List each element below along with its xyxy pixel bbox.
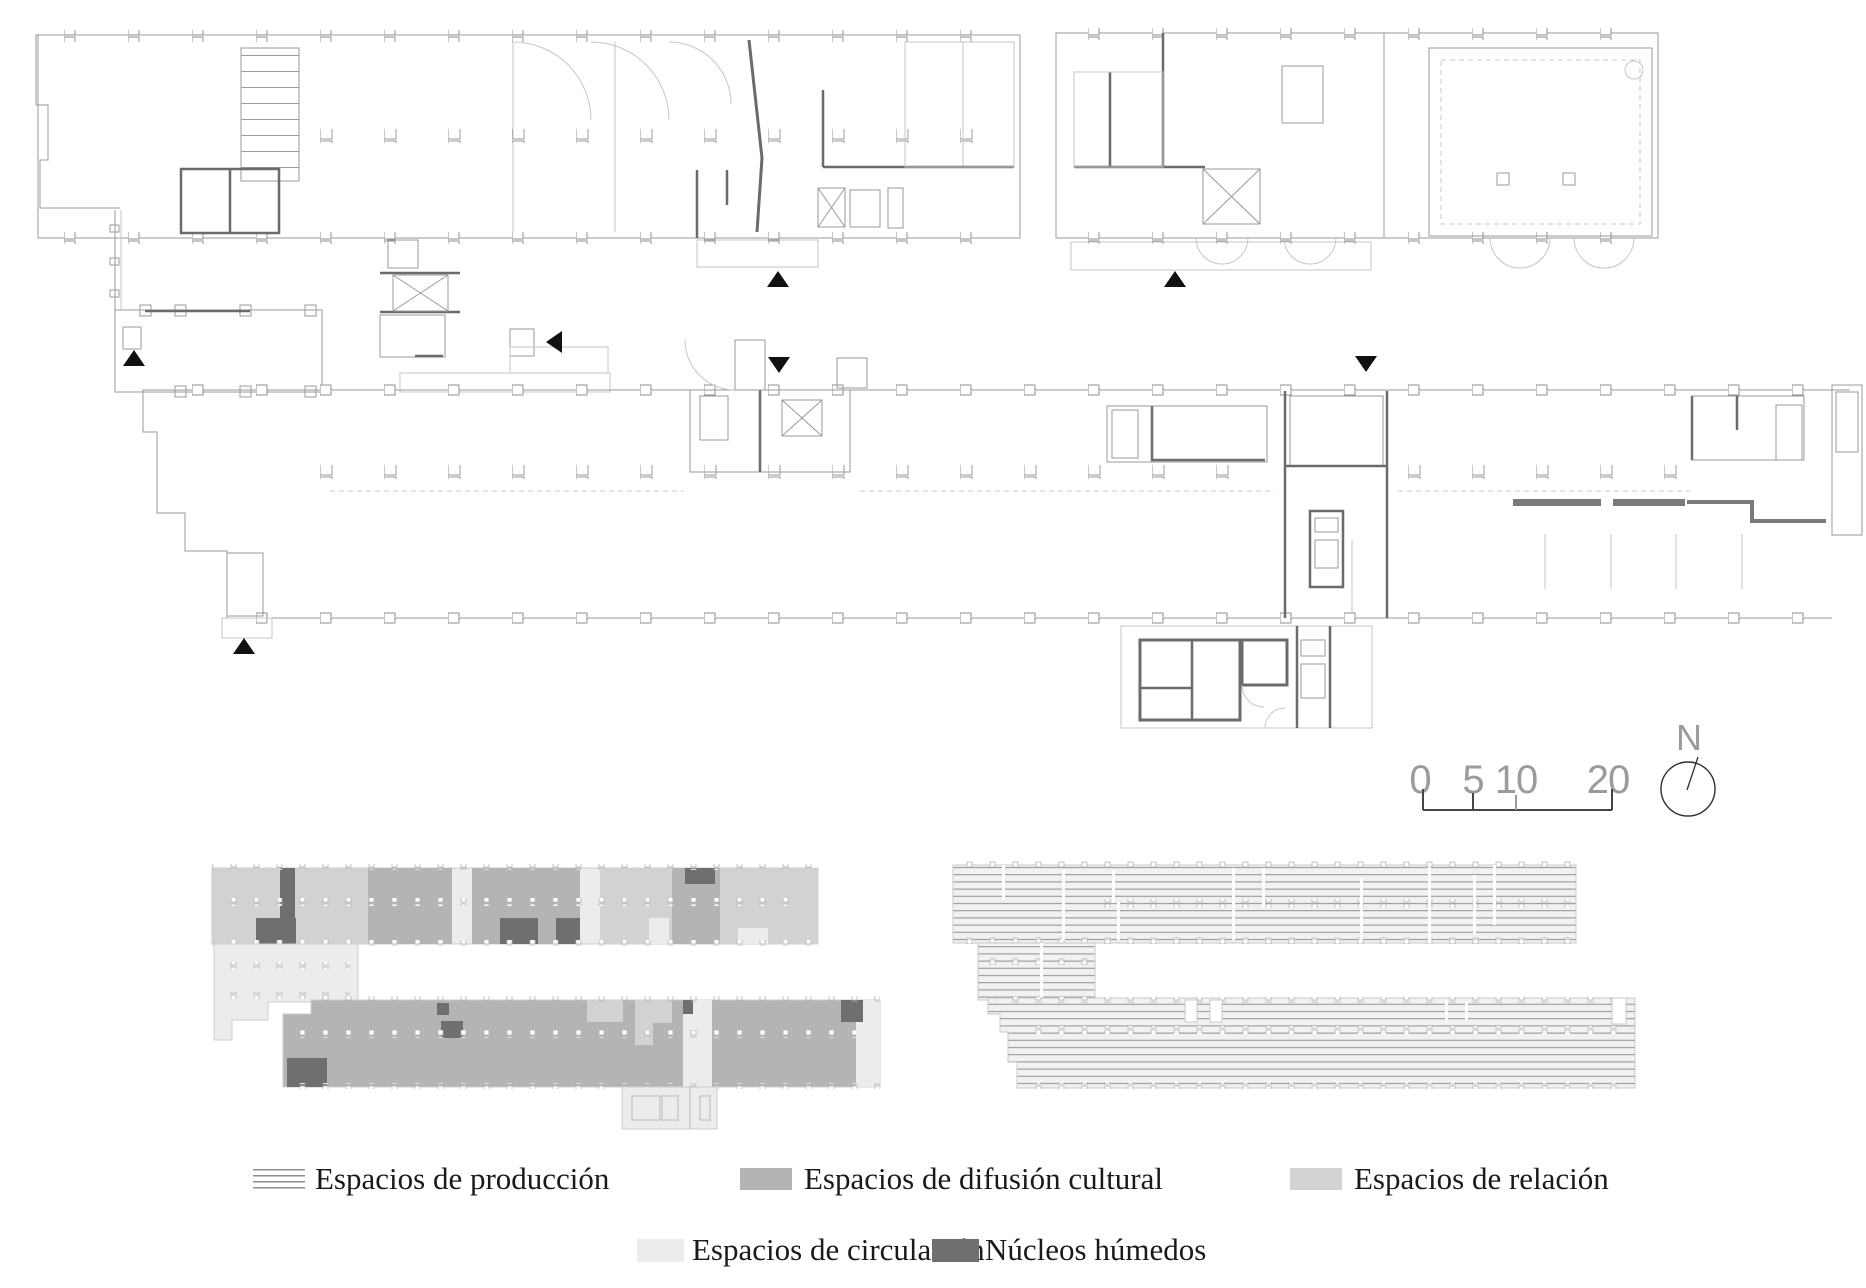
building-lower-bar — [143, 340, 1862, 638]
loading-dock-outline — [1071, 242, 1371, 270]
stair — [123, 327, 141, 349]
core-cluster-1 — [690, 390, 850, 472]
bottom-annex — [1121, 626, 1372, 728]
north-arrow: N — [1661, 717, 1715, 816]
facade-columns-bottom — [227, 612, 1832, 624]
production-diagram — [953, 861, 1635, 1089]
produccion-swatch-icon — [253, 1169, 305, 1189]
stair — [510, 329, 534, 356]
interior-column-row — [290, 129, 1010, 143]
stair — [837, 358, 867, 388]
entrance-marker-up — [233, 638, 255, 654]
circulacion-swatch-icon — [637, 1239, 684, 1262]
stair — [1282, 66, 1323, 123]
core-cluster-2 — [1107, 406, 1267, 462]
building-top-right — [1056, 28, 1658, 270]
interior-column-row — [1400, 465, 1700, 479]
hatched-connector — [978, 943, 1095, 1000]
entrance-marker-left — [546, 331, 562, 353]
large-hall — [1429, 48, 1652, 236]
legend-label: Espacios de producción — [315, 1161, 609, 1197]
wet-core-fill — [685, 868, 715, 884]
wet-core-fill — [683, 1000, 693, 1014]
stair — [388, 240, 418, 268]
building-top-left — [36, 30, 1020, 267]
scale-bar: 0 5 10 20 — [1409, 758, 1629, 810]
facade-columns-top — [185, 384, 1850, 396]
heavy-wall — [1613, 499, 1685, 506]
door-arc — [669, 42, 731, 104]
entrance-marker-down — [1355, 356, 1377, 372]
legend-label: Espacios de relación — [1354, 1161, 1609, 1197]
right-end-rooms — [1692, 396, 1804, 460]
legend-label: Espacios de difusión cultural — [804, 1161, 1163, 1197]
door-arc — [513, 42, 591, 120]
entrance-marker-up — [1164, 271, 1186, 287]
annex-room — [1242, 640, 1287, 685]
legend-item-nucleos: Núcleos húmedos — [932, 1233, 1206, 1267]
main-floor-plan — [36, 28, 1862, 728]
stair — [227, 553, 263, 616]
entrance-marker-down — [768, 357, 790, 373]
facade-columns-top — [38, 30, 1020, 42]
legend-item-difusion: Espacios de difusión cultural — [740, 1162, 1163, 1196]
wet-core-fill — [841, 1000, 863, 1022]
floor-plan-drawing: 0 5 10 20 N — [0, 0, 1866, 1288]
zoning-diagram — [212, 864, 880, 1129]
nucleos-swatch-icon — [932, 1239, 979, 1262]
entrance-marker-up — [767, 271, 789, 287]
door-arc — [591, 42, 669, 120]
relacion-swatch-icon — [1290, 1168, 1342, 1190]
annex-circulation — [622, 1087, 717, 1129]
entrance-marker-up — [123, 350, 145, 366]
loading-dock-outline — [697, 240, 818, 267]
wet-core-fill — [287, 1058, 327, 1087]
difusion-swatch-icon — [740, 1168, 792, 1190]
legend-label: Núcleos húmedos — [985, 1232, 1206, 1268]
architectural-drawing-sheet: 0 5 10 20 N — [0, 0, 1866, 1288]
heavy-wall — [1513, 499, 1601, 506]
door-arc — [1242, 685, 1264, 707]
north-label: N — [1676, 717, 1702, 758]
legend-item-produccion: Espacios de producción — [253, 1162, 609, 1196]
annex-room — [1140, 640, 1240, 720]
scale-label-0: 0 — [1409, 758, 1430, 802]
heavy-wall — [1687, 502, 1826, 521]
wet-core-fill — [437, 1003, 449, 1015]
legend-item-relacion: Espacios de relación — [1290, 1162, 1609, 1196]
wet-core-fill — [280, 868, 295, 922]
patio-room — [115, 310, 322, 392]
scale-label-20: 20 — [1587, 758, 1630, 802]
core-band-3 — [1285, 391, 1387, 618]
door-arc — [1265, 708, 1285, 728]
facade-columns-top — [1056, 28, 1658, 40]
door-fan — [685, 340, 735, 390]
